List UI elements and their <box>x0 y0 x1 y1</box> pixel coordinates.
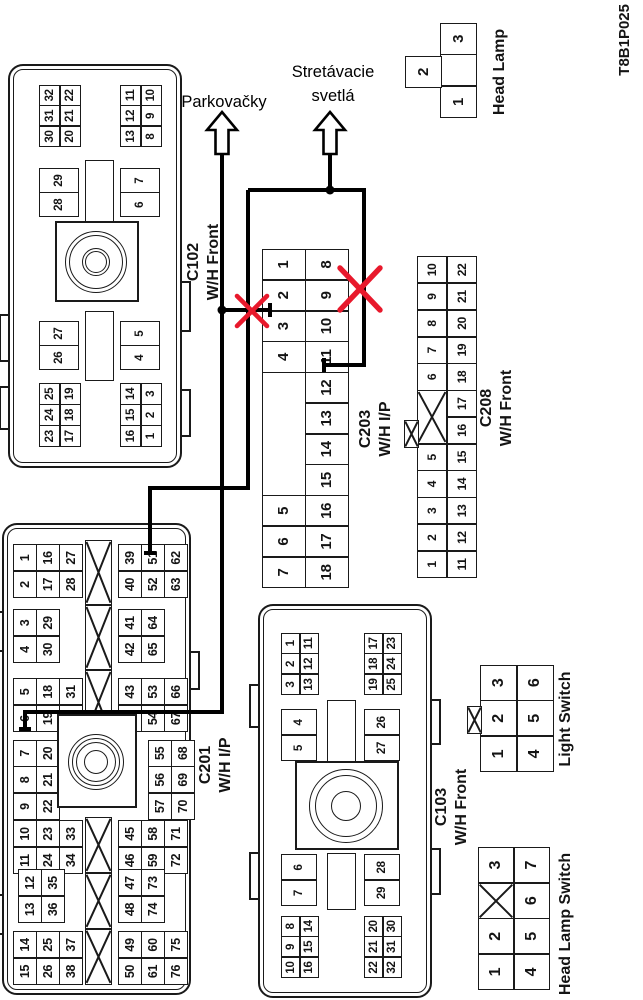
pin-cell: 71 <box>165 821 187 846</box>
pin-cell: 10 <box>14 821 36 846</box>
pin-cell: 9 <box>14 794 36 819</box>
connector-c103-pin-grid: 321131211 <box>281 633 319 695</box>
pin-cell: 19 <box>37 706 59 731</box>
pin-cell: 64 <box>142 610 164 635</box>
connector-c102-key-slot <box>85 311 114 381</box>
pin-cell: 8 <box>14 767 36 792</box>
pin-cell: 4 <box>518 737 553 771</box>
pin-cell: 30 <box>384 917 401 936</box>
pin-cell: 14 <box>306 435 348 464</box>
pin-cell: 11 <box>121 86 140 105</box>
pin-cell: 10 <box>282 958 299 977</box>
x-mark-icon <box>418 391 446 443</box>
pin-cell: 74 <box>142 897 164 922</box>
x-mark-icon <box>86 818 111 872</box>
pin-cell: 4 <box>515 955 549 989</box>
connector-c201-pin-grid: 13123635 <box>18 869 65 923</box>
connector-c201-pin-grid: 575655706968 <box>148 740 195 820</box>
pin-cell: 53 <box>142 679 164 704</box>
x-mark-icon <box>405 421 418 447</box>
pin-cell: 7 <box>418 338 446 363</box>
pin-cell: 13 <box>448 498 476 523</box>
pin-cell: 4 <box>121 347 159 370</box>
pin-cell: 9 <box>142 106 161 125</box>
pin-cell: 45 <box>119 821 141 846</box>
pin-cell: 31 <box>60 679 82 704</box>
pin-cell: 7 <box>14 741 36 766</box>
pin-cell: 1 <box>282 634 299 653</box>
diagram-page: T8B1P025 3031322021221312118910232425171… <box>0 0 643 1000</box>
x-mark-icon <box>86 930 111 984</box>
pin-cell: 21 <box>365 937 382 956</box>
pin-cell <box>418 391 446 443</box>
pin-cell: 14 <box>121 384 140 404</box>
pin-cell: 5 <box>518 701 553 735</box>
pin-cell: 69 <box>172 767 194 792</box>
pin-cell: 15 <box>306 465 348 494</box>
pin-cell: 11 <box>306 342 348 371</box>
pin-cell: 4 <box>263 342 305 371</box>
connector-c103-title: C103 <box>432 717 452 897</box>
pin-cell: 3 <box>142 384 161 404</box>
pin-cell: 54 <box>142 706 164 731</box>
pin-cell: 60 <box>142 932 164 957</box>
pin-cell: 13 <box>19 897 41 922</box>
connector-c201-pin-grid: 151426253837 <box>13 931 83 985</box>
pin-cell: 6 <box>282 855 316 879</box>
connector-c103-pin-grid: 76 <box>281 854 317 906</box>
pin-cell: 18 <box>448 364 476 389</box>
pin-cell: 2 <box>479 919 513 953</box>
pin-cell: 36 <box>42 897 64 922</box>
pin-cell: 1 <box>418 552 446 577</box>
pin-cell: 32 <box>384 958 401 977</box>
pin-cell: 1 <box>481 737 516 771</box>
pin-cell: 7 <box>515 848 549 882</box>
connector-c201-label: C201W/H I/P <box>196 675 236 855</box>
connector-c103-pin-grid: 222120323130 <box>364 916 402 978</box>
pin-cell: 9 <box>418 284 446 309</box>
connector-c201-pin-grid: 403952516362 <box>118 544 188 598</box>
pin-cell: 23 <box>40 426 59 446</box>
pin-cell: 50 <box>119 959 141 984</box>
connector-c103-pin-grid: 2726 <box>364 709 400 761</box>
pin-cell: 30 <box>37 637 59 662</box>
pin-cell: 14 <box>448 471 476 496</box>
connector-c203-subtitle: W/H I/P <box>376 339 396 519</box>
pin-cell: 12 <box>121 106 140 125</box>
pin-cell: 22 <box>61 86 80 105</box>
pin-cell: 16 <box>448 418 476 443</box>
pin-cell: 18 <box>37 679 59 704</box>
pin-cell: 12 <box>306 373 348 402</box>
connector-head-lamp-switch-pin-grid: 1234567 <box>478 847 550 990</box>
pin-cell: 58 <box>142 821 164 846</box>
x-mark-icon <box>479 884 513 918</box>
pin-cell: 5 <box>121 322 159 345</box>
connector-c208-pin-grid: 12345678910111213141516171819202122 <box>417 256 477 578</box>
pin-cell: 49 <box>119 932 141 957</box>
pin-cell: 17 <box>448 391 476 416</box>
pin-cell: 4 <box>282 710 316 734</box>
pin-cell: 8 <box>142 127 161 146</box>
connector-c103-pin-grid: 191817252423 <box>364 633 402 695</box>
connector-head-lamp-pin-grid: 2 <box>405 56 442 88</box>
connector-c103-key-slot <box>327 700 356 762</box>
pin-cell: 10 <box>418 257 446 282</box>
pin-cell: 29 <box>40 169 78 192</box>
connector-c102-pin-grid: 303132202122 <box>39 85 81 147</box>
pin-cell: 5 <box>263 496 305 525</box>
connector-c201-pin-grid: 42416564 <box>118 609 165 663</box>
pin-cell: 43 <box>119 679 141 704</box>
connector-head-lamp-pin-grid: 13 <box>440 23 477 118</box>
bowtie-icon <box>86 874 111 928</box>
pin-cell: 2 <box>263 281 305 310</box>
connector-light-switch-title: Light Switch <box>556 629 576 809</box>
pin-cell: 6 <box>121 194 159 217</box>
pin-cell: 13 <box>121 127 140 146</box>
figure-code: T8B1P025 <box>616 4 633 114</box>
pin-cell: 66 <box>165 679 187 704</box>
pin-cell: 6 <box>518 666 553 700</box>
connector-c103-pin-grid: 2928 <box>364 854 400 906</box>
pin-cell: 25 <box>384 675 401 694</box>
pin-cell: 26 <box>37 959 59 984</box>
connector-head-lamp-title: Head Lamp <box>490 0 510 162</box>
bowtie-icon <box>86 541 111 604</box>
pin-cell: 3 <box>479 848 513 882</box>
pin-cell: 2 <box>142 405 161 425</box>
pin-cell: 22 <box>365 958 382 977</box>
pin-cell: 28 <box>40 194 78 217</box>
pin-cell: 29 <box>365 881 399 905</box>
pin-cell: 33 <box>60 821 82 846</box>
pin-cell: 55 <box>149 741 171 766</box>
pin-cell: 75 <box>165 932 187 957</box>
pin-cell: 2 <box>418 525 446 550</box>
pin-cell: 25 <box>40 384 59 404</box>
connector-c208-title: C208 <box>477 318 497 498</box>
connector-c201-pin-grid: 111024233433 <box>13 820 83 874</box>
pin-cell: 5 <box>282 736 316 760</box>
pin-cell: 21 <box>448 284 476 309</box>
pin-cell: 25 <box>37 932 59 957</box>
pin-cell: 27 <box>40 322 78 345</box>
connector-c103-pin-grid: 1098161514 <box>281 916 319 978</box>
pin-cell <box>441 55 476 85</box>
pin-cell: 19 <box>365 675 382 694</box>
pin-cell: 9 <box>282 937 299 956</box>
pin-cell: 17 <box>61 426 80 446</box>
pin-cell: 19 <box>448 338 476 363</box>
pin-cell: 6 <box>418 364 446 389</box>
pin-cell: 48 <box>119 897 141 922</box>
pin-cell: 21 <box>61 106 80 125</box>
pin-cell: 8 <box>282 917 299 936</box>
pin-cell: 2 <box>406 57 441 87</box>
pin-cell: 4 <box>14 637 36 662</box>
pin-cell: 3 <box>418 498 446 523</box>
connector-c201-pin-grid: 48477473 <box>118 869 165 923</box>
pin-cell: 2 <box>481 701 516 735</box>
connector-c102-pin-grid: 67 <box>120 168 160 217</box>
pin-cell: 65 <box>142 637 164 662</box>
pin-cell: 2 <box>282 654 299 673</box>
pin-cell: 41 <box>119 610 141 635</box>
pin-cell: 8 <box>306 250 348 279</box>
pin-cell: 15 <box>121 405 140 425</box>
connector-c201-bowtie-strip <box>85 540 112 735</box>
pin-cell <box>479 884 513 918</box>
pin-cell: 21 <box>37 767 59 792</box>
bowtie-icon <box>86 818 111 872</box>
pin-cell: 24 <box>384 654 401 673</box>
pin-cell: 37 <box>60 932 82 957</box>
connector-c102-subtitle: W/H Front <box>204 172 224 352</box>
pin-cell: 31 <box>40 106 59 125</box>
pin-cell: 76 <box>165 959 187 984</box>
pin-cell: 16 <box>121 426 140 446</box>
pin-cell: 13 <box>306 404 348 433</box>
connector-c102-key-slot <box>85 160 114 230</box>
pin-cell: 11 <box>301 634 318 653</box>
pin-cell: 15 <box>448 445 476 470</box>
connector-c102-pin-grid: 232425171819 <box>39 383 81 447</box>
pin-cell: 39 <box>119 545 141 570</box>
connector-c103-key-slot <box>327 853 356 910</box>
pin-cell: 28 <box>365 855 399 879</box>
pin-cell: 20 <box>365 917 382 936</box>
pin-cell: 62 <box>165 545 187 570</box>
connector-c201-bolt-circle <box>84 750 108 774</box>
pin-cell: 31 <box>384 937 401 956</box>
connector-c102-pin-grid: 45 <box>120 321 160 370</box>
pin-cell: 18 <box>61 405 80 425</box>
connector-c201-pin-grid: 987222120 <box>13 740 60 820</box>
pin-cell: 28 <box>60 572 82 597</box>
pin-cell: 7 <box>121 169 159 192</box>
pin-cell: 26 <box>40 347 78 370</box>
pin-cell: 1 <box>14 545 36 570</box>
pin-cell: 22 <box>448 257 476 282</box>
connector-c102-pin-grid: 161514123 <box>120 383 162 447</box>
pin-cell: 22 <box>37 794 59 819</box>
pin-cell: 20 <box>448 311 476 336</box>
connector-c201-bowtie-strip <box>85 817 112 985</box>
connector-c208-subtitle: W/H Front <box>497 318 517 498</box>
pin-cell: 1 <box>142 426 161 446</box>
pin-cell: 68 <box>172 741 194 766</box>
pin-cell: 9 <box>306 281 348 310</box>
pin-cell: 17 <box>365 634 382 653</box>
pin-cell: 10 <box>306 312 348 341</box>
pin-cell: 23 <box>384 634 401 653</box>
pin-cell: 67 <box>165 706 187 731</box>
rotated-diagram-canvas: T8B1P025 3031322021221312118910232425171… <box>0 0 643 1000</box>
pin-cell: 1 <box>263 250 305 279</box>
connector-c102-pin-grid: 2829 <box>39 168 79 217</box>
pin-cell: 20 <box>37 741 59 766</box>
connector-c102-title: C102 <box>184 172 204 352</box>
x-mark-icon <box>86 874 111 928</box>
pin-cell: 6 <box>14 706 36 731</box>
pin-cell: 40 <box>119 572 141 597</box>
pin-cell: 3 <box>263 312 305 341</box>
pin-cell: 42 <box>119 637 141 662</box>
pin-cell: 72 <box>165 848 187 873</box>
pin-cell: 26 <box>365 710 399 734</box>
pin-cell: 7 <box>263 558 305 587</box>
pin-cell: 15 <box>14 959 36 984</box>
connector-c102-label: C102W/H Front <box>184 172 224 352</box>
connector-c201-pin-grid: 2117162827 <box>13 544 83 598</box>
pin-cell: 30 <box>40 127 59 146</box>
connector-c203-title: C203 <box>356 339 376 519</box>
x-mark-icon <box>86 541 111 604</box>
pin-cell: 18 <box>306 558 348 587</box>
connector-c102-pin-grid: 2627 <box>39 321 79 370</box>
pin-cell: 57 <box>149 794 171 819</box>
connector-c203-pin-grid: 765432118171615141312111098 <box>262 249 349 588</box>
pin-cell: 14 <box>14 932 36 957</box>
connector-head-lamp-switch-title: Head Lamp Switch <box>556 834 576 1000</box>
connector-c201-title: C201 <box>196 675 216 855</box>
pin-cell: 5 <box>14 679 36 704</box>
pin-cell: 56 <box>149 767 171 792</box>
pin-cell: 70 <box>172 794 194 819</box>
pin-cell: 12 <box>19 870 41 895</box>
pin-cell: 7 <box>282 881 316 905</box>
pin-cell: 63 <box>165 572 187 597</box>
pin-cell: 13 <box>301 675 318 694</box>
pin-cell <box>263 373 305 495</box>
connector-c201-subtitle: W/H I/P <box>216 675 236 855</box>
pin-cell: 3 <box>14 610 36 635</box>
connector-c203-label: C203W/H I/P <box>356 339 396 519</box>
connector-c103-pin-grid: 54 <box>281 709 317 761</box>
pin-cell: 51 <box>142 545 164 570</box>
pin-cell: 35 <box>42 870 64 895</box>
pin-cell: 6 <box>515 884 549 918</box>
pin-cell: 52 <box>142 572 164 597</box>
pin-cell: 5 <box>515 919 549 953</box>
bowtie-icon <box>86 606 111 669</box>
connector-c103-label: C103W/H Front <box>432 717 472 897</box>
pin-cell: 23 <box>37 821 59 846</box>
pin-cell: 27 <box>365 736 399 760</box>
pin-cell: 16 <box>306 496 348 525</box>
pin-cell: 61 <box>142 959 164 984</box>
connector-c201-pin-grid: 464559587271 <box>118 820 188 874</box>
pin-cell: 29 <box>37 610 59 635</box>
x-mark-icon <box>86 606 111 669</box>
pin-cell: 19 <box>61 384 80 404</box>
pin-cell: 38 <box>60 959 82 984</box>
pin-cell: 5 <box>418 445 446 470</box>
pin-cell: 16 <box>301 958 318 977</box>
pin-cell: 10 <box>142 86 161 105</box>
connector-c201-pin-grid: 433029 <box>13 609 60 663</box>
pin-cell: 27 <box>60 545 82 570</box>
pin-cell: 11 <box>448 552 476 577</box>
pin-cell: 6 <box>263 527 305 556</box>
pin-cell: 15 <box>301 937 318 956</box>
pin-cell: 32 <box>40 86 59 105</box>
connector-head-lamp-label: Head Lamp <box>490 0 510 162</box>
connector-c103-subtitle: W/H Front <box>452 717 472 897</box>
pin-cell: 12 <box>448 525 476 550</box>
connector-c208-bowtie-marker <box>404 420 419 448</box>
pin-cell: 4 <box>418 471 446 496</box>
connector-c102-pin-grid: 1312118910 <box>120 85 162 147</box>
bowtie-icon <box>86 930 111 984</box>
pin-cell: 2 <box>14 572 36 597</box>
pin-cell: 3 <box>441 24 476 54</box>
pin-cell: 14 <box>301 917 318 936</box>
pin-cell: 1 <box>441 87 476 117</box>
pin-cell: 3 <box>282 675 299 694</box>
pin-cell: 47 <box>119 870 141 895</box>
pin-cell: 18 <box>365 654 382 673</box>
pin-cell: 12 <box>301 654 318 673</box>
pin-cell: 16 <box>37 545 59 570</box>
pin-cell: 24 <box>40 405 59 425</box>
connector-head-lamp-switch-label: Head Lamp Switch <box>556 834 576 1000</box>
connector-c208-label: C208W/H Front <box>477 318 517 498</box>
connector-c201-pin-grid: 504961607675 <box>118 931 188 985</box>
pin-cell: 1 <box>479 955 513 989</box>
pin-cell: 20 <box>61 127 80 146</box>
pin-cell: 17 <box>306 527 348 556</box>
connector-light-switch-pin-grid: 123456 <box>480 665 554 772</box>
pin-cell: 73 <box>142 870 164 895</box>
pin-cell: 8 <box>418 311 446 336</box>
pin-cell: 3 <box>481 666 516 700</box>
connector-light-switch-label: Light Switch <box>556 629 576 809</box>
pin-cell: 17 <box>37 572 59 597</box>
